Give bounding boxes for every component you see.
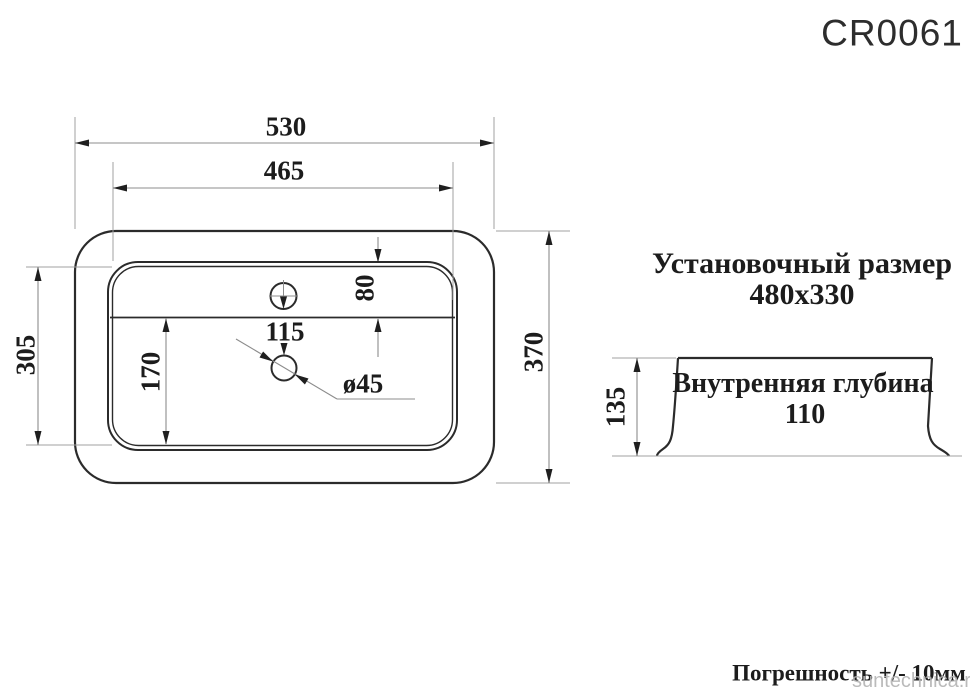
- model-number: CR0061: [821, 15, 963, 52]
- dim-label-faucet-offset: 80: [352, 275, 379, 302]
- dim-label-side-height: 135: [603, 387, 630, 428]
- dim-label-hole-spacing: 115: [265, 319, 304, 346]
- dim-label-inner-width: 465: [264, 158, 305, 185]
- dim-label-overall-width: 530: [266, 114, 307, 141]
- inner-depth-value: 110: [785, 401, 825, 429]
- install-size-value: 480x330: [750, 280, 855, 310]
- install-size-label: Установочный размер: [652, 249, 952, 279]
- dim-label-drain-offset: 170: [138, 352, 165, 393]
- technical-drawing-page: CR0061 530 465 305 370 80 115 170 ø45 Ус…: [0, 0, 970, 694]
- watermark: suntechnica.ru: [852, 671, 970, 691]
- dim-label-inner-height: 305: [13, 335, 40, 376]
- inner-depth-label: Внутренняя глубина: [672, 370, 933, 398]
- dim-label-drain-diameter: ø45: [343, 371, 384, 398]
- dim-drain-diameter-leader: [236, 339, 415, 399]
- sink-dimension-drawing: [0, 0, 970, 694]
- dim-label-overall-height: 370: [521, 332, 548, 373]
